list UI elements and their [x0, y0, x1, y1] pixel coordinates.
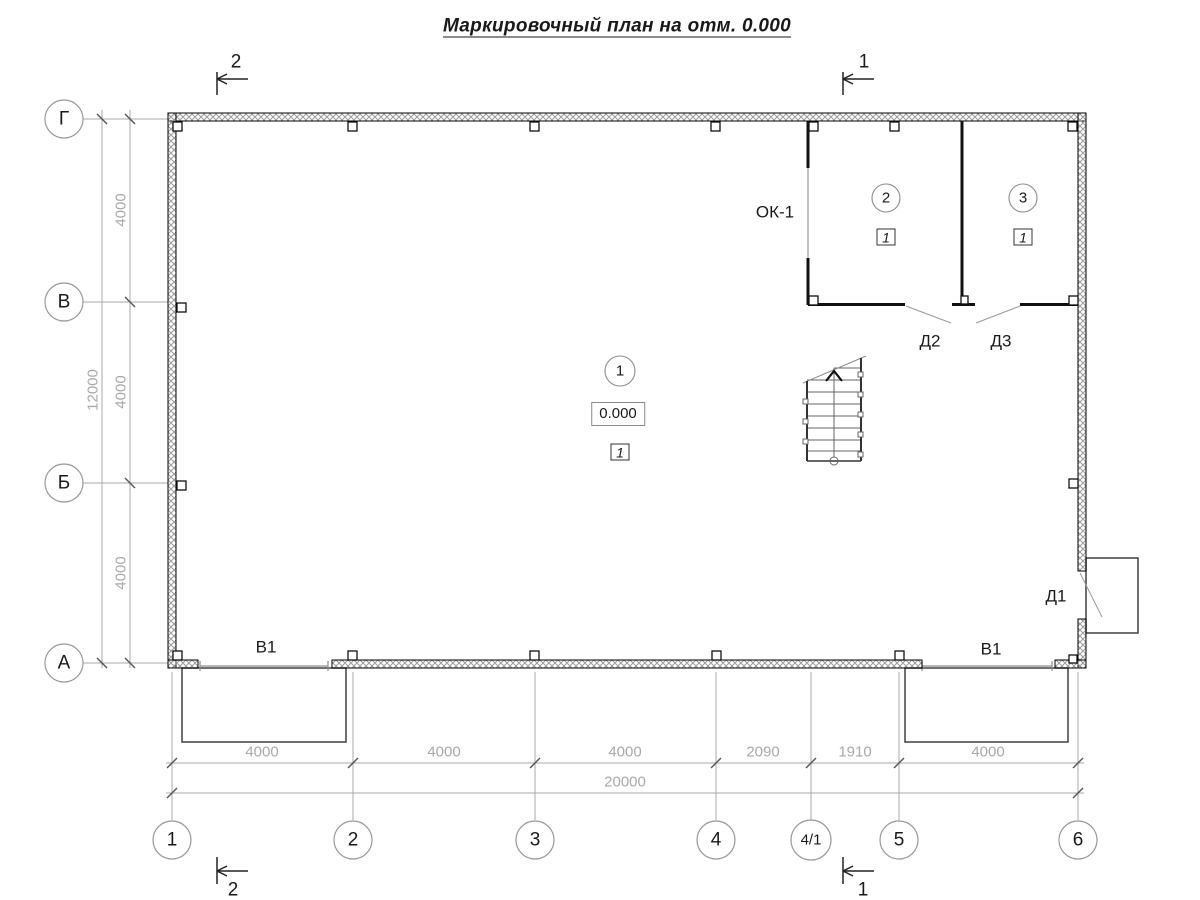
door-label-d3: Д3 — [991, 333, 1012, 350]
section-marks — [217, 72, 874, 884]
plan-linework — [0, 0, 1200, 900]
room-3-floor-type: 1 — [1014, 229, 1033, 246]
axis-label-col-5: 5 — [894, 831, 905, 850]
axis-label-col-6: 6 — [1073, 831, 1084, 850]
axis-label-row-a: А — [58, 654, 71, 673]
section-number-top-right: 1 — [859, 53, 870, 72]
section-number-top-left: 2 — [231, 53, 242, 72]
section-mark-top-right — [843, 72, 874, 95]
dim-left-total: 12000 — [86, 369, 101, 411]
dim-bottom-4: 2090 — [746, 745, 779, 760]
dim-left-2: 4000 — [114, 375, 129, 408]
door-leaves — [906, 306, 1102, 617]
dim-left-1: 4000 — [114, 193, 129, 226]
exterior-walls — [168, 113, 1086, 668]
gate-label-v1-left: В1 — [256, 639, 277, 656]
axis-label-col-2: 2 — [348, 831, 359, 850]
dim-bottom-3: 4000 — [608, 745, 641, 760]
door-label-d2: Д2 — [920, 333, 941, 350]
axis-label-row-b: Б — [58, 474, 70, 493]
axis-label-col-1: 1 — [167, 831, 178, 850]
columns — [173, 122, 1078, 663]
drawing-title: Маркировочный план на отм. 0.000 — [443, 17, 791, 36]
room-3-number: 3 — [1019, 191, 1027, 206]
axis-label-row-g: Г — [59, 110, 69, 129]
section-number-bottom-left: 2 — [228, 881, 239, 900]
partitions — [807, 121, 1079, 306]
room-2-number: 2 — [882, 191, 890, 206]
stair — [803, 356, 866, 465]
dim-bottom-total: 20000 — [604, 775, 646, 790]
dim-left-3: 4000 — [114, 556, 129, 589]
door-leaf-d2 — [906, 306, 951, 323]
room-1-number: 1 — [616, 364, 624, 379]
room-number-circles — [605, 184, 1037, 386]
axis-label-row-v: В — [58, 293, 71, 312]
dim-bottom-5: 1910 — [838, 745, 871, 760]
door-label-d1: Д1 — [1046, 588, 1067, 605]
gate-label-v1-right: В1 — [981, 641, 1002, 658]
dim-bottom-2: 4000 — [427, 745, 460, 760]
dimension-lines — [83, 110, 1084, 820]
dim-bottom-6: 4000 — [971, 745, 1004, 760]
window-label-ok1: ОК-1 — [756, 204, 794, 221]
door-leaf-d1 — [1080, 573, 1102, 617]
section-mark-top-left — [217, 72, 248, 95]
dimension-ticks — [97, 114, 1083, 798]
elevation-mark: 0.000 — [591, 402, 645, 426]
room-2-floor-type: 1 — [877, 229, 896, 246]
section-number-bottom-right: 1 — [858, 881, 869, 900]
axis-label-col-4: 4 — [711, 831, 722, 850]
door-leaf-d3 — [976, 306, 1020, 323]
floor-plan-sheet: Маркировочный план на отм. 0.000 Г В Б А… — [0, 0, 1200, 900]
axis-label-col-3: 3 — [530, 831, 541, 850]
room-1-floor-type: 1 — [611, 444, 630, 461]
dim-bottom-1: 4000 — [245, 745, 278, 760]
axis-bubbles — [45, 100, 1097, 860]
axis-label-col-4-1: 4/1 — [801, 833, 822, 848]
